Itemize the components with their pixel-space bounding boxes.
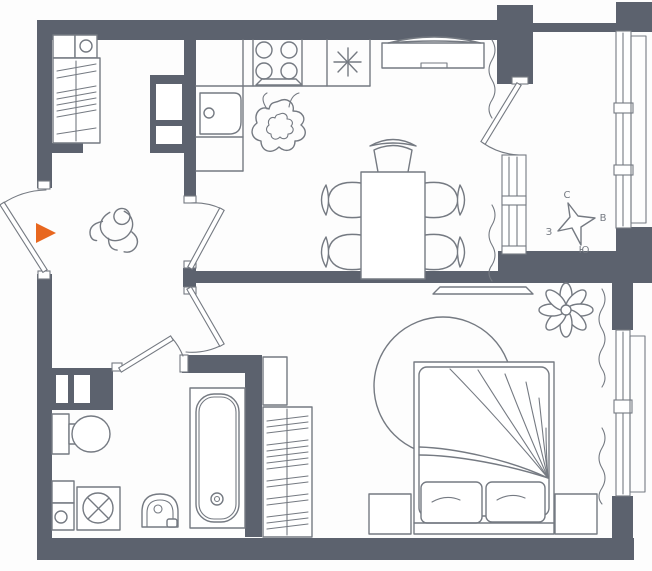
bathroom-door [119,336,183,372]
dining-chair [322,234,362,269]
compass-south-label: Ю [579,245,590,256]
pillow [486,482,545,522]
toilet [52,414,110,454]
stove [256,42,302,85]
basin [142,494,178,527]
living-room-door [188,203,224,269]
kitchen-sink [200,93,241,134]
wall-tv [433,287,533,294]
tv-console [382,37,484,68]
door-jamb-caps [38,77,528,372]
bedroom-curtains [599,289,605,504]
living-balcony-window [502,155,526,254]
kitchen [196,37,495,281]
person-figure [85,206,142,263]
bedroom [263,283,605,537]
water-heater [52,481,74,530]
dining-set [322,140,465,280]
bed [414,362,554,534]
washing-machine [77,487,120,530]
pillow [421,482,482,523]
compass-rose: С В З Ю [546,190,607,256]
compass-north-label: С [564,190,571,201]
balcony-window [614,31,646,228]
entrance-arrow [36,223,56,243]
balcony-door [481,83,521,155]
dining-chair [425,234,465,269]
nightstand [555,494,597,534]
dining-chair [322,182,362,217]
bedroom-door [186,287,224,353]
hall-shelf [53,35,97,58]
hood-asterisk-icon [334,48,361,76]
dining-table [361,172,425,279]
nightstand [369,494,411,534]
floor-plan: С В З Ю [0,0,652,571]
compass-east-label: В [600,213,607,224]
bathtub [190,388,245,528]
bedroom-plant [539,283,593,337]
bedroom-window [614,330,645,496]
kitchen-plant [252,93,305,151]
hall-wardrobe [53,58,100,143]
floor-plan-drawing: С В З Ю [0,0,652,571]
living-room-curtains [489,40,495,281]
dining-chair [370,140,416,173]
dining-chair [425,182,465,217]
compass-west-label: З [546,227,552,238]
balcony: С В З Ю [546,190,607,256]
bedroom-wardrobe [263,357,312,537]
